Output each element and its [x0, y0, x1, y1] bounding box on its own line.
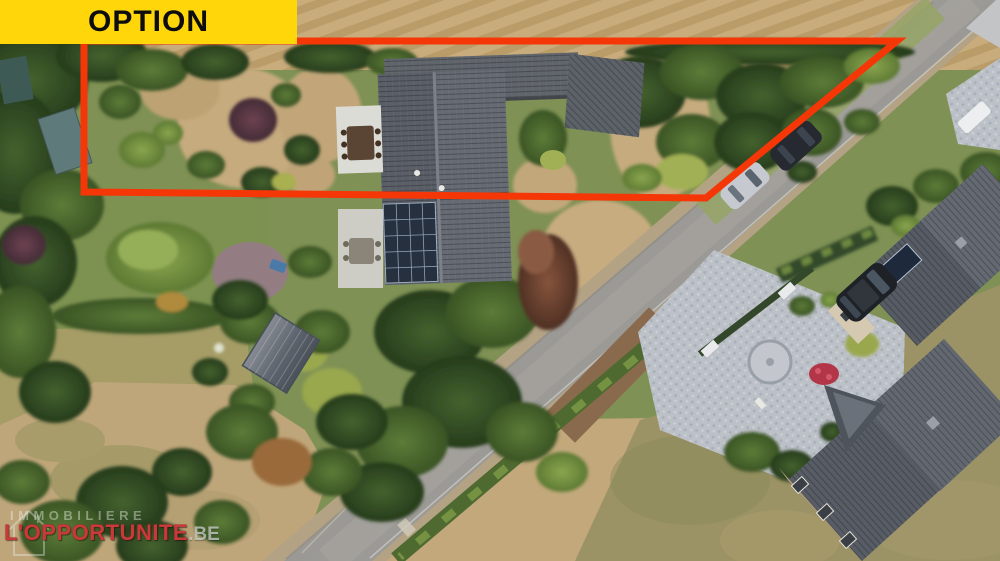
patio-table [349, 238, 374, 264]
option-banner-label: OPTION [88, 5, 209, 39]
courtyard-bush-light [540, 150, 566, 170]
white-terrace [336, 105, 383, 174]
aerial-photo: OPTION IMMOBILIERE L'OPPORTUNITE.BE [0, 0, 1000, 561]
option-banner: OPTION [0, 0, 297, 44]
driveway-circle-center [766, 358, 774, 366]
red-flower-bush [809, 363, 839, 385]
dining-table [347, 126, 375, 161]
scene-canvas [0, 0, 1000, 561]
patio-terrace [338, 209, 383, 288]
